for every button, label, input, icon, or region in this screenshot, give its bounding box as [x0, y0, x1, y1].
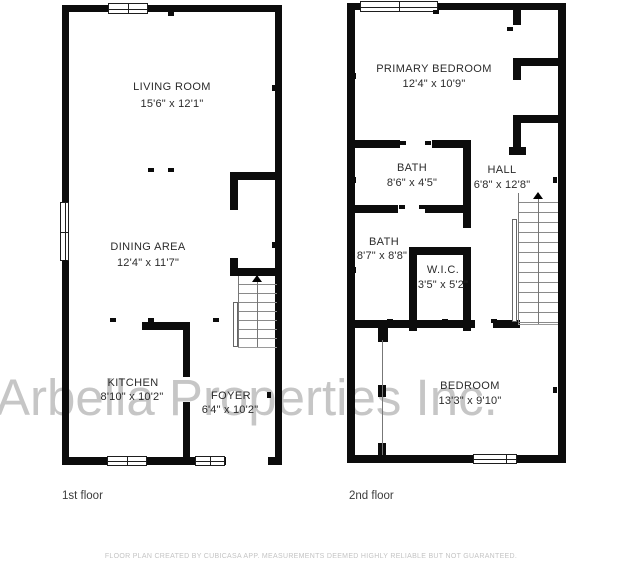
window-symbol [107, 456, 147, 466]
stair-edge [518, 193, 519, 324]
wall-segment [509, 147, 526, 155]
wall-segment [183, 405, 190, 457]
door-tick [553, 177, 557, 183]
partition-line [382, 340, 383, 455]
room-label-kitchen: KITCHEN [107, 377, 158, 389]
floor-plan-1st-floor: LIVING ROOM 15'6" x 12'1" DINING AREA 12… [62, 5, 282, 465]
room-dims-bath-upper: 8'6" x 4'5" [387, 177, 437, 189]
door-tick [425, 141, 431, 145]
door-tick [63, 85, 67, 91]
window-divider [127, 457, 128, 465]
room-dims-kitchen: 8'10" x 10'2" [101, 391, 164, 403]
wall-segment [558, 3, 566, 463]
window-symbol [108, 3, 148, 14]
wall-segment [183, 322, 190, 374]
room-dims-bath-lower: 8'7" x 8'8" [357, 250, 407, 262]
door-tick [63, 260, 67, 266]
floor-caption-2nd: 2nd floor [349, 490, 394, 502]
room-dims-dining-area: 12'4" x 11'7" [117, 257, 179, 269]
room-dims-bedroom: 13'3" x 9'10" [439, 395, 502, 407]
door-tick [267, 392, 271, 398]
window-divider [399, 2, 400, 11]
wall-segment [409, 247, 417, 331]
room-label-wic: W.I.C. [427, 264, 459, 276]
stair-railing [233, 302, 238, 347]
stair-railing [512, 219, 517, 322]
door-tick [352, 267, 356, 273]
door-tick [387, 319, 393, 323]
door-opening [226, 456, 268, 465]
stair-up-arrow-icon [533, 192, 543, 199]
floor-caption-1st: 1st floor [62, 490, 103, 502]
door-tick [148, 168, 154, 172]
window-symbol [473, 454, 517, 464]
door-tick [433, 10, 439, 14]
floor-plan-2nd-floor: PRIMARY BEDROOM 12'4" x 10'9" BATH 8'6" … [347, 3, 566, 463]
window-symbol [60, 202, 69, 261]
door-tick [491, 319, 497, 323]
window-divider [61, 232, 68, 233]
wall-segment [432, 140, 465, 148]
wall-segment [347, 3, 355, 463]
floor-plan-canvas: Arbella Properties Inc. LIVING ROOM 15'6… [0, 0, 622, 569]
wall-segment [350, 140, 400, 148]
wall-segment [347, 455, 566, 463]
window-divider [128, 4, 129, 13]
room-label-living-room: LIVING ROOM [133, 81, 211, 93]
door-tick [272, 242, 276, 248]
door-tick [168, 12, 174, 16]
room-label-hall: HALL [487, 164, 516, 176]
room-dims-primary-bedroom: 12'4" x 10'9" [403, 78, 466, 90]
wall-segment [62, 5, 282, 12]
stair-centerline [538, 193, 539, 324]
door-tick [168, 168, 174, 172]
room-label-bedroom: BEDROOM [440, 380, 500, 392]
wall-segment [409, 247, 463, 255]
wall-segment [463, 140, 471, 228]
wall-segment [350, 205, 398, 213]
door-tick [507, 27, 513, 31]
window-centerline [474, 459, 516, 460]
window-divider [506, 455, 507, 463]
door-tick [110, 318, 116, 322]
door-tick [352, 73, 356, 79]
wall-segment [230, 172, 238, 210]
door-tick [352, 177, 356, 183]
room-dims-wic: 3'5" x 5'2" [418, 279, 468, 291]
stair-centerline [257, 276, 258, 347]
door-tick [63, 195, 67, 201]
door-tick [272, 85, 276, 91]
wall-segment [378, 328, 388, 342]
staircase [518, 193, 558, 325]
door-tick [148, 318, 154, 322]
window-symbol [360, 1, 438, 12]
stair-up-arrow-icon [252, 275, 262, 282]
wall-segment [513, 3, 521, 25]
room-label-primary-bedroom: PRIMARY BEDROOM [376, 63, 492, 75]
room-dims-hall: 6'8" x 12'8" [474, 179, 531, 191]
window-symbol [195, 456, 225, 466]
door-tick [400, 141, 406, 145]
room-dims-foyer: 6'4" x 10'2" [202, 404, 259, 416]
door-tick [399, 205, 405, 209]
window-divider [210, 457, 211, 465]
stair-edge [238, 276, 239, 347]
door-tick [419, 205, 425, 209]
door-tick [442, 319, 448, 323]
door-tick [183, 374, 190, 377]
room-label-dining-area: DINING AREA [110, 241, 185, 253]
wall-segment [275, 5, 282, 465]
room-label-bath-lower: BATH [369, 236, 399, 248]
wall-segment [347, 320, 475, 328]
disclaimer-text: FLOOR PLAN CREATED BY CUBICASA APP. MEAS… [0, 553, 622, 560]
door-tick [213, 318, 219, 322]
room-label-foyer: FOYER [211, 390, 251, 402]
wall-segment [513, 58, 521, 80]
door-tick [183, 402, 190, 405]
door-tick [553, 387, 557, 393]
wall-segment [425, 205, 471, 213]
room-label-bath-upper: BATH [397, 162, 427, 174]
staircase [238, 276, 277, 348]
wall-segment [230, 258, 238, 268]
room-dims-living-room: 15'6" x 12'1" [141, 98, 204, 110]
